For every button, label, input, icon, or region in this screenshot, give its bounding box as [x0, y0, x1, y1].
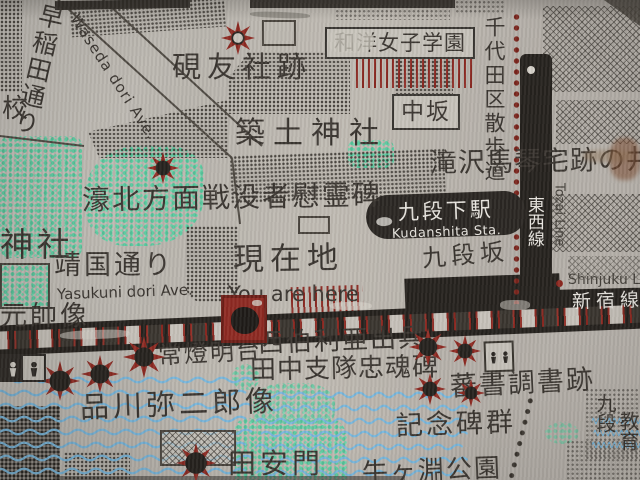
landmark-label-kinenhi-group: 記念碑群: [396, 409, 517, 442]
landmark-label-gohoku-memorial: 濠北方面戦没者慰霊碑: [82, 180, 382, 215]
building-outline: [298, 216, 330, 234]
restroom-cell-dark: [2, 356, 23, 380]
trail-label-chiyoda-walk: 千代田区散歩道: [483, 16, 505, 212]
star-marker-icon: [409, 328, 447, 366]
rail-label-tozai-en: Tozai Line: [552, 183, 566, 275]
street-label-nakazaka: 中坂: [392, 94, 460, 130]
building-outline: [262, 20, 296, 46]
current-location-label: 現在地: [233, 242, 345, 276]
star-marker-icon: [147, 152, 179, 184]
rail-label-shinjuku: 新宿線: [572, 291, 640, 313]
landmark-label-gensui-statue: 元帥像: [0, 303, 90, 331]
star-marker-icon: [457, 379, 485, 407]
landmark-label-takizawa-well: 滝沢馬琴宅跡の井戸: [430, 146, 640, 179]
landmark-label-kudan-partial: 九段: [594, 393, 615, 453]
rail-label-shinjuku-en: Shinjuku Line: [568, 273, 640, 288]
star-marker-icon: [123, 336, 165, 378]
shinjuku-line-dot: [556, 280, 563, 287]
restroom-icon: [483, 340, 514, 372]
landmark-label-school-partial: 校: [2, 96, 28, 123]
building-red-hatched: [356, 56, 472, 88]
you-are-here-marker: [221, 295, 267, 343]
rail-label-tozai: 東西線: [524, 196, 542, 281]
star-marker-icon: [40, 361, 80, 401]
marker-dot: [231, 307, 259, 334]
landmark-label-joshi-gakuen: 和洋女子学園: [325, 27, 475, 59]
restroom-cell-light: [23, 356, 44, 380]
map-plaque-photo: 早稲田通り Waseda dori Ave. 靖国通り Yasukuni dor…: [0, 0, 640, 480]
star-marker-icon: [449, 335, 481, 367]
landmark-label-tsukudo-shrine: 築土神社: [235, 118, 387, 150]
landmark-label-ushigafuchi-park: 牛ヶ淵公園: [362, 456, 503, 480]
band-scuff: [527, 66, 535, 74]
star-marker-icon: [81, 355, 119, 393]
star-marker-icon: [221, 21, 255, 55]
star-marker-icon: [176, 443, 216, 480]
plaque-edge-shadow: [250, 0, 455, 8]
restroom-icon: [0, 354, 46, 382]
landmark-label-tayasu-gate: 田安門: [228, 449, 324, 478]
landmark-label-kenyusha: 硯友社跡: [172, 52, 312, 82]
landmark-label-shrine-partial: 神社: [0, 228, 74, 263]
marker-scuff: [252, 300, 262, 306]
landmark-label-kyoiku-partial: 教育: [617, 411, 638, 471]
star-marker-icon: [414, 373, 446, 405]
